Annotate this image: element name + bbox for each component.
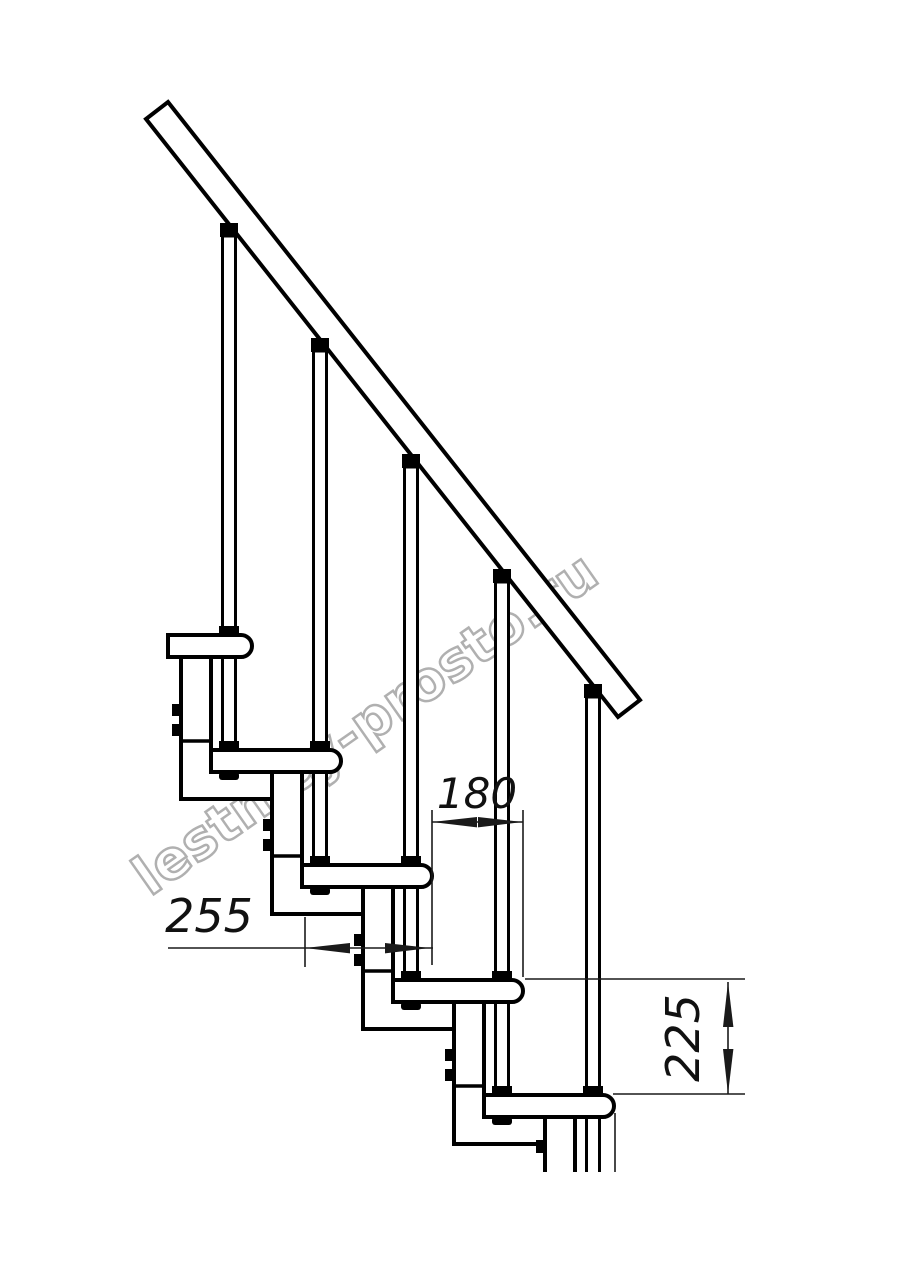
step-tread — [302, 865, 432, 887]
rail-connector — [402, 454, 420, 468]
step-tread — [168, 635, 252, 657]
baluster — [223, 236, 236, 772]
baluster-nut — [219, 772, 239, 780]
bolt — [354, 954, 365, 966]
bolt — [263, 819, 274, 831]
rail-connector — [311, 338, 329, 352]
bolt — [172, 724, 183, 736]
step-tread — [484, 1095, 614, 1117]
bolt — [354, 934, 365, 946]
step-tread — [211, 750, 341, 772]
bolt — [172, 704, 183, 716]
bolt — [263, 839, 274, 851]
baluster-collar — [492, 1086, 512, 1095]
dimension-label-run: 180 — [437, 769, 517, 818]
baluster-collar — [310, 856, 330, 865]
baluster-nut — [310, 887, 330, 895]
rail-connector — [584, 684, 602, 698]
arrowhead-up — [723, 982, 733, 1027]
step-tread — [393, 980, 523, 1002]
arrowhead-down — [723, 1049, 733, 1094]
arrowhead-left — [432, 817, 477, 827]
baluster-collar — [401, 971, 421, 980]
baluster-collar — [583, 1086, 603, 1095]
rail-connector — [493, 569, 511, 583]
bolt — [445, 1049, 456, 1061]
baluster — [314, 351, 327, 887]
baluster — [405, 467, 418, 1002]
staircase-side-view-drawing: lestnicy-prosto.ru — [0, 0, 914, 1280]
stringer-module-cut — [545, 1117, 575, 1172]
baluster-collar — [219, 626, 239, 635]
baluster-collar — [492, 971, 512, 980]
baluster-collar — [310, 741, 330, 750]
dimension-label-depth: 255 — [165, 889, 253, 943]
baluster-collar — [401, 856, 421, 865]
rail-connector — [220, 223, 238, 237]
baluster-nut — [401, 1002, 421, 1010]
baluster-collar — [219, 741, 239, 750]
bolt — [445, 1069, 456, 1081]
handrail — [146, 102, 640, 717]
bolt — [536, 1140, 546, 1153]
balusters — [223, 236, 600, 1172]
dimension-label-rise: 225 — [656, 994, 710, 1082]
baluster-nut — [492, 1117, 512, 1125]
arrowhead-left — [305, 943, 350, 953]
baluster — [496, 582, 509, 1117]
technical-drawing-page: lestnicy-prosto.ru — [0, 0, 914, 1280]
